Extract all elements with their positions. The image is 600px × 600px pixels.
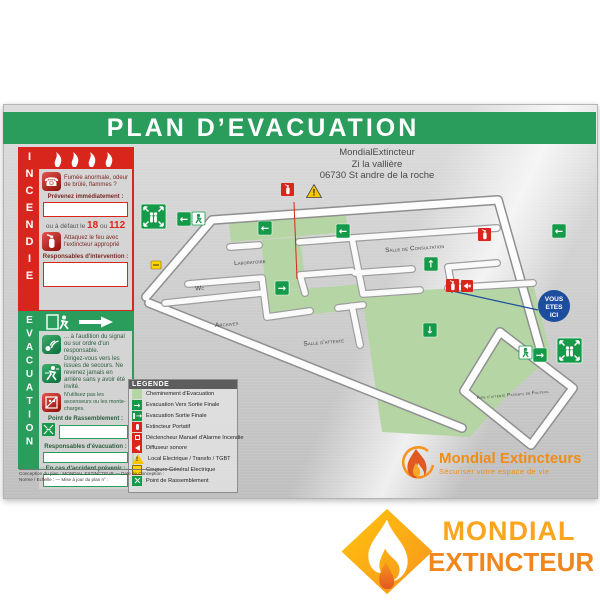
assembly-point-label: Point de Rassemblement : xyxy=(42,416,129,422)
footer-logo: MONDIAL EXTINCTEUR xyxy=(428,516,590,577)
assembly-mini-icon xyxy=(42,423,55,441)
no-elevator-text: N'utilisez pas les ascenseurs ou les mon… xyxy=(64,392,129,413)
legend-item: Extincteur Portatif xyxy=(129,421,237,432)
legend-electrical-warning-icon: ! xyxy=(132,454,144,464)
fineprint-line-2: Norme / Echelle : — Mise à jour du plan … xyxy=(19,477,179,483)
smoke-alert-text: Fumée anormale, odeur de brûlé, flammes … xyxy=(64,175,129,189)
legend-item: → Evacuation Vers Sortie Finale xyxy=(129,400,237,411)
responsables-evacuation-label: Responsables d'évacuation : xyxy=(42,444,129,450)
responsables-evacuation-box xyxy=(43,452,128,463)
exits-text: Dirigez-vous vers les issues de secours.… xyxy=(64,356,129,391)
evacuation-vertical-band: EVACUATION xyxy=(20,313,39,467)
emergency-numbers-line: ou à défaut le 18 ou 112 xyxy=(42,220,129,231)
svg-text:☎: ☎ xyxy=(44,175,59,189)
assembly-point-box xyxy=(59,425,128,439)
legend-evacuation-path-icon xyxy=(132,389,142,399)
legend-item: Cheminement d'Evacuation xyxy=(129,389,237,400)
exit-man-header-icon xyxy=(39,313,132,331)
address-line-1: MondialExtincteur xyxy=(274,147,480,159)
board-brand-logo: Mondial Extincteurs Sécuriser votre espa… xyxy=(398,441,584,485)
legend-exit-arrow-icon: → xyxy=(132,400,142,410)
legend-sounder-icon xyxy=(132,443,142,453)
legend-extinguisher-icon xyxy=(132,422,142,432)
title-banner: PLAN D’EVACUATION xyxy=(3,112,596,144)
evacuation-vertical-label: EVACUATION xyxy=(24,315,35,467)
running-man-icon xyxy=(42,364,61,383)
incendie-vertical-label: INCENDIE xyxy=(24,151,36,310)
address-line-2: Zi la vallière xyxy=(274,159,480,171)
legend-item: → Evacuation Sortie Finale xyxy=(129,411,237,422)
plan-title: PLAN D’EVACUATION xyxy=(3,112,523,144)
legend-exit-final-icon: → xyxy=(132,411,142,421)
brand-name: Mondial Extincteurs xyxy=(439,451,582,467)
signal-text: ... à l'audition du signal ou sur ordre … xyxy=(64,334,129,355)
notify-input-box xyxy=(43,202,128,217)
legend-item: ! Local Electrique / Transfo / TGBT xyxy=(129,454,237,465)
brand-flame-icon xyxy=(398,443,434,483)
no-elevator-icon xyxy=(42,393,61,412)
legend-item: Déclencheur Manuel d'Alarme Incendie xyxy=(129,432,237,443)
brand-tagline: Sécuriser votre espace de vie xyxy=(439,467,582,476)
footer-word-1: MONDIAL xyxy=(428,516,590,547)
responsables-intervention-box xyxy=(43,262,128,287)
address-line-3: 06730 St andre de la roche xyxy=(274,170,480,182)
extinguisher-app-icon xyxy=(42,232,61,251)
footer-diamond-flame-icon xyxy=(336,506,438,598)
legend-title: LEGENDE xyxy=(129,380,237,389)
incendie-panel: INCENDIE ☎ Fumée anormale, odeur de brûl… xyxy=(18,147,134,312)
notify-label: Prévenez immédiatement : xyxy=(42,194,129,200)
incendie-vertical-band: INCENDIE xyxy=(20,149,39,310)
number-18: 18 xyxy=(87,220,98,231)
signal-icon xyxy=(42,335,61,354)
flames-icon xyxy=(39,149,132,169)
legend-item: Diffuseur sonore xyxy=(129,443,237,454)
legend-manual-alarm-icon xyxy=(132,433,142,443)
attack-fire-text: Attaquez le feu avec l'extincteur approp… xyxy=(64,235,129,249)
evacuation-plan-product-image: PLAN D’EVACUATION MondialExtincteur Zi l… xyxy=(0,0,600,600)
phone-icon: ☎ xyxy=(42,172,61,191)
site-address: MondialExtincteur Zi la vallière 06730 S… xyxy=(274,147,480,182)
footer-word-2: EXTINCTEUR xyxy=(428,547,590,577)
fineprint: Conception du plan : MONDIAL EXTINCTEUR … xyxy=(19,469,179,483)
evacuation-panel: EVACUATION ... à l'audition du signal ou… xyxy=(18,311,134,469)
responsables-intervention-label: Responsables d'intervention : xyxy=(42,254,129,260)
number-112: 112 xyxy=(109,220,125,231)
